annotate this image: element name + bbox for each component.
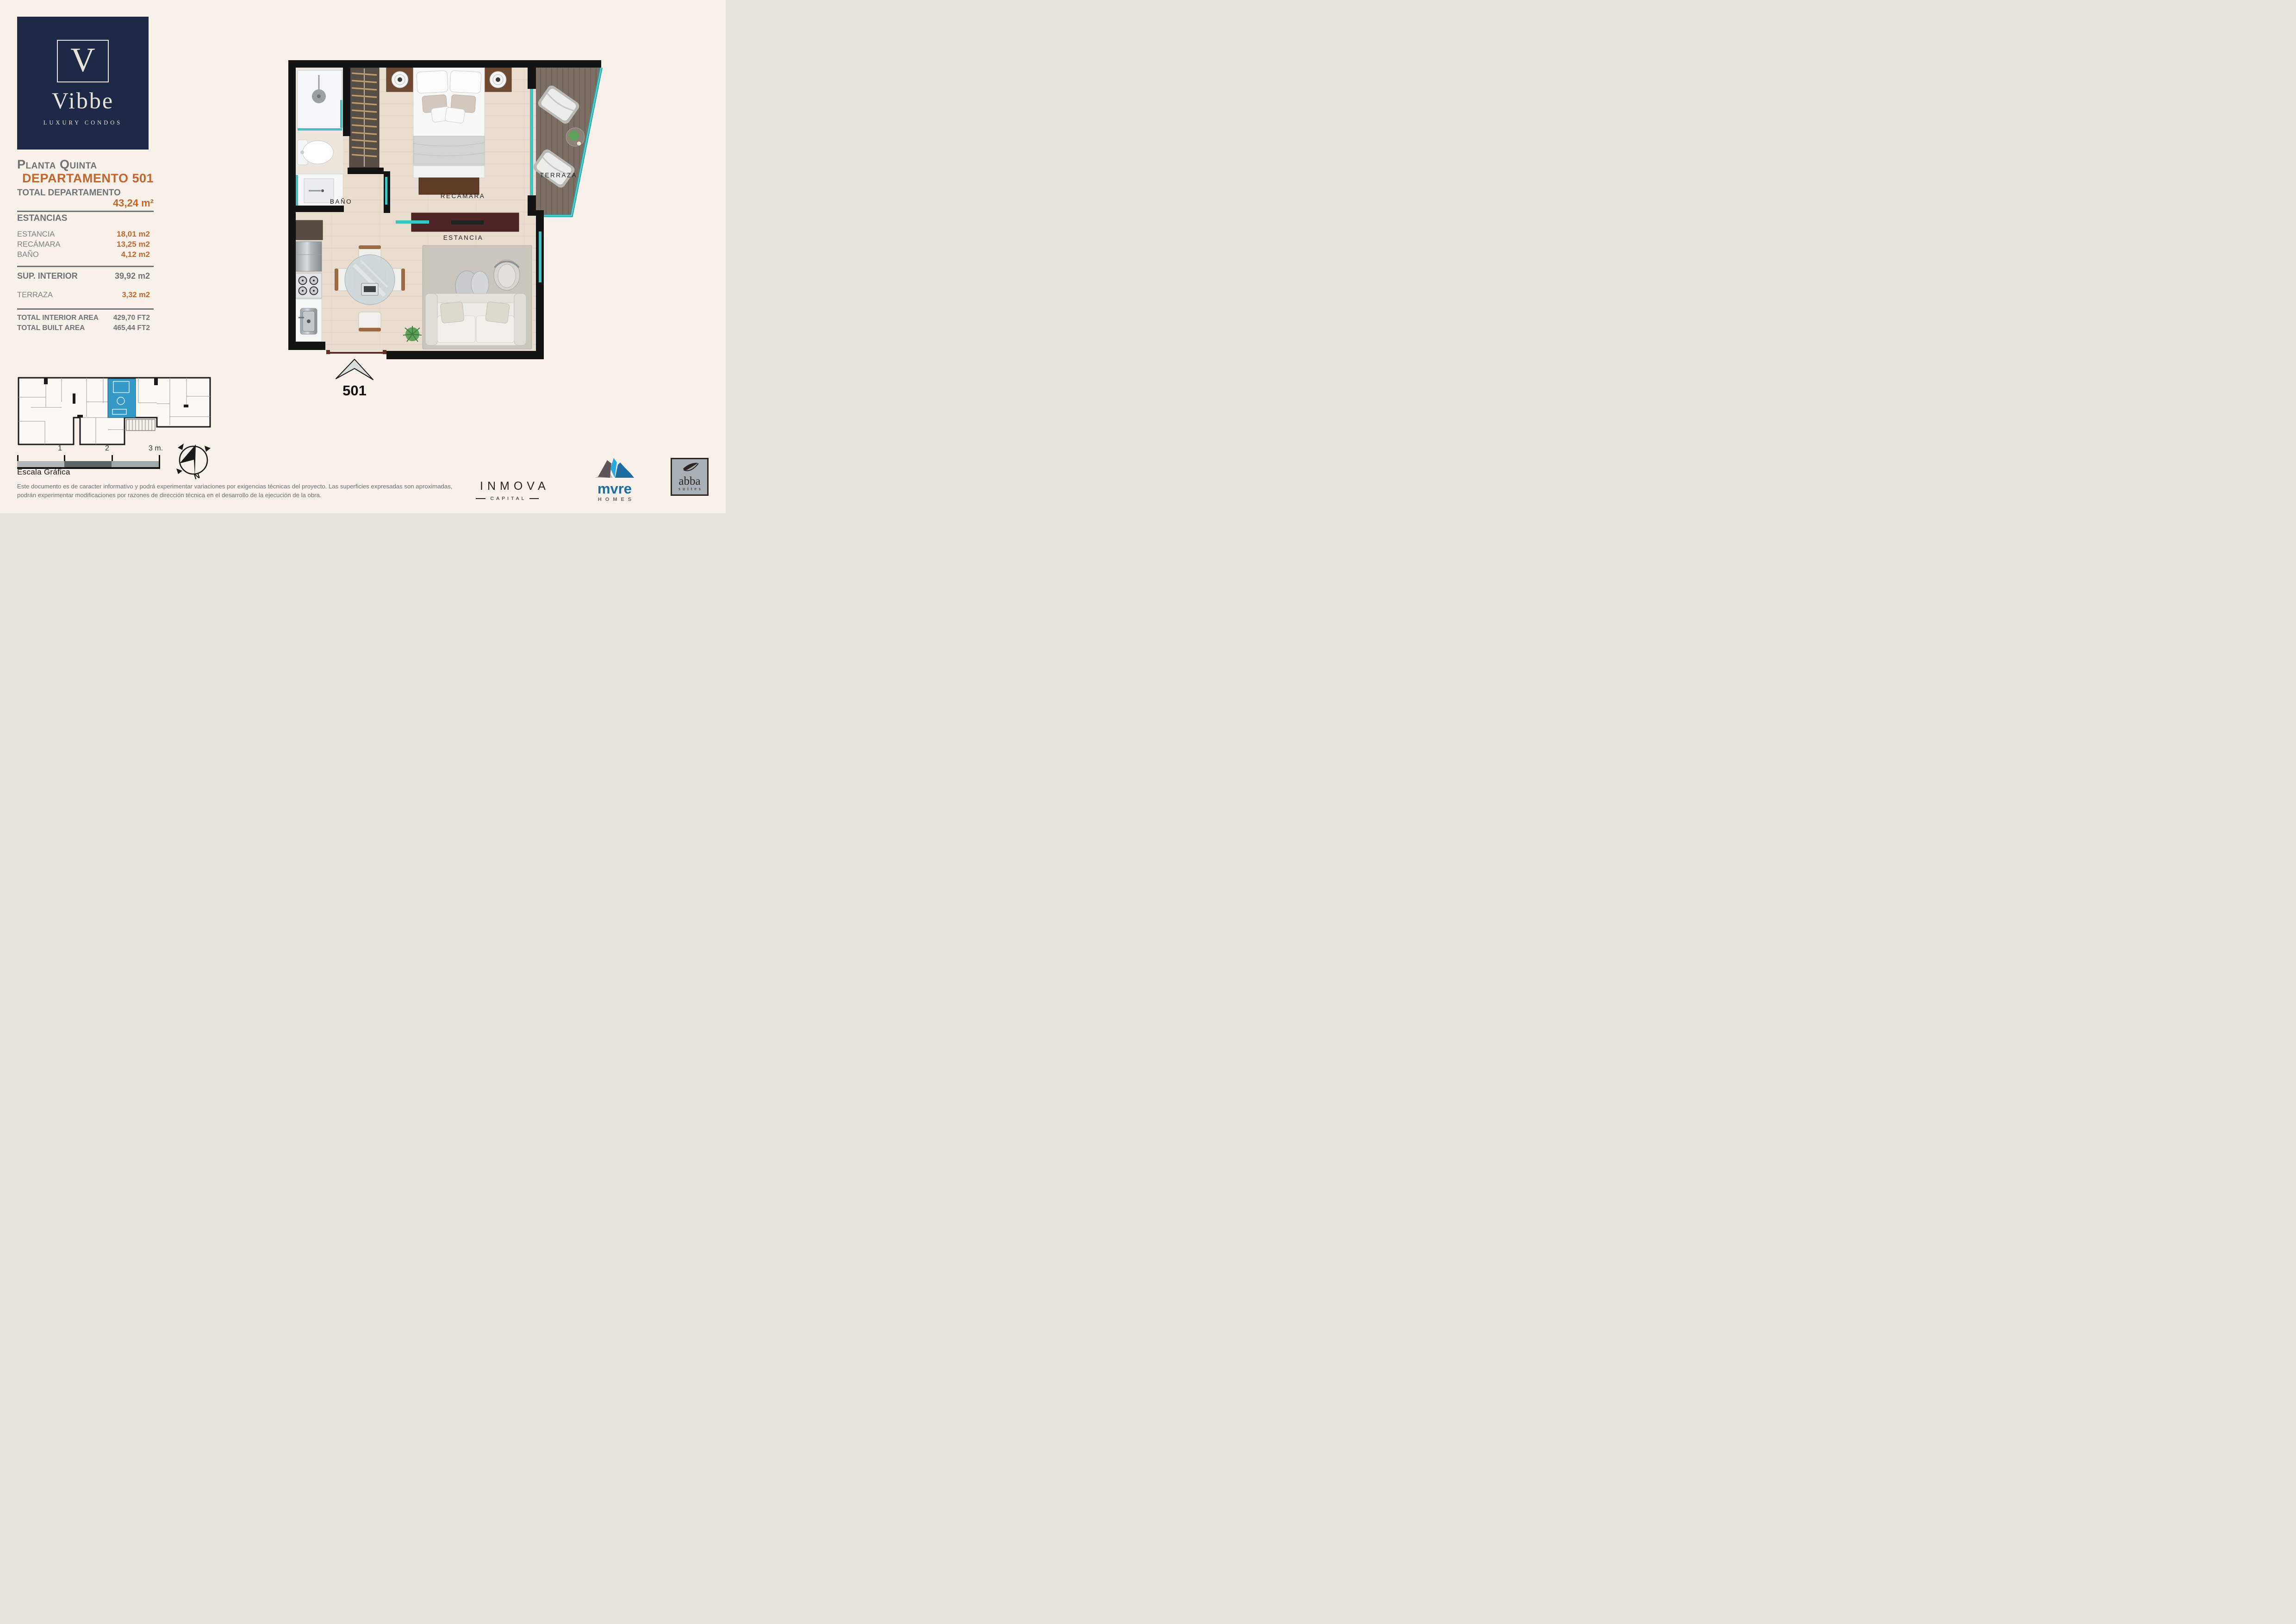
terraza-row: TERRAZA 3,32 m2 bbox=[17, 291, 154, 300]
floorplan: BAÑO RECÁMARA ESTANCIA TERRAZA 501 bbox=[288, 58, 608, 401]
highlighted-unit-501 bbox=[108, 379, 136, 418]
key-plan bbox=[17, 375, 212, 448]
accent-chair bbox=[494, 260, 520, 290]
kitchen-sink bbox=[296, 299, 322, 342]
sup-interior-label: SUP. INTERIOR bbox=[17, 271, 78, 281]
abba-name: abba bbox=[672, 476, 707, 487]
sup-interior-value: 39,92 m2 bbox=[115, 271, 154, 281]
room-label: BAÑO bbox=[17, 250, 39, 259]
kitchen bbox=[296, 220, 323, 342]
terrace-table bbox=[566, 128, 585, 146]
mvre-mountains-icon bbox=[592, 456, 637, 481]
total-departamento-label: TOTAL DEPARTAMENTO bbox=[17, 188, 154, 198]
bed-bench bbox=[419, 178, 479, 194]
scale-segments bbox=[17, 461, 160, 467]
nightstand-right bbox=[485, 68, 511, 92]
total-built-row: TOTAL BUILT AREA 465,44 FT2 bbox=[17, 324, 154, 332]
bedroom-window-glass bbox=[530, 89, 533, 195]
page-canvas: V Vibbe LUXURY CONDOS Planta Quinta DEPA… bbox=[0, 0, 726, 513]
room-row-recamara: RECÁMARA 13,25 m2 bbox=[17, 240, 154, 249]
room-value: 4,12 m2 bbox=[121, 250, 154, 259]
total-departamento-value: 43,24 m² bbox=[17, 197, 157, 209]
nightstand-left bbox=[386, 68, 413, 92]
logo-v-letter: V bbox=[17, 41, 149, 80]
brand-logo: V Vibbe LUXURY CONDOS bbox=[17, 17, 149, 150]
sofa bbox=[425, 294, 526, 345]
unit-title: DEPARTAMENTO 501 bbox=[17, 171, 154, 186]
fridge bbox=[296, 242, 322, 271]
abba-sub: suites bbox=[672, 487, 707, 492]
room-row-estancia: ESTANCIA 18,01 m2 bbox=[17, 230, 154, 239]
total-built-value: 465,44 FT2 bbox=[113, 324, 154, 332]
label-recamara: RECÁMARA bbox=[441, 193, 485, 200]
hall-pocket-door bbox=[385, 177, 387, 205]
divider bbox=[17, 266, 154, 267]
unit-number-marker: 501 bbox=[336, 359, 373, 399]
scale-title: Escala Gráfica bbox=[17, 468, 70, 477]
total-interior-row: TOTAL INTERIOR AREA 429,70 FT2 bbox=[17, 314, 154, 322]
total-built-label: TOTAL BUILT AREA bbox=[17, 324, 85, 332]
inmova-name: INMOVA bbox=[476, 480, 539, 493]
total-interior-label: TOTAL INTERIOR AREA bbox=[17, 314, 99, 322]
tv-console bbox=[396, 213, 519, 231]
disclaimer-line-1: Este documento es de caracter informativ… bbox=[17, 482, 461, 491]
abba-leaf-icon bbox=[679, 461, 700, 473]
stairs bbox=[126, 419, 155, 431]
room-value: 18,01 m2 bbox=[117, 230, 154, 239]
shower-panel-glass bbox=[340, 100, 342, 128]
label-terraza: TERRAZA bbox=[540, 172, 578, 179]
estancias-heading: ESTANCIAS bbox=[17, 213, 154, 224]
wardrobe bbox=[349, 68, 379, 168]
floor-title: Planta Quinta bbox=[17, 157, 154, 172]
compass-icon: N bbox=[172, 438, 215, 482]
terrace bbox=[532, 68, 601, 216]
scale-tick-3: 3 m. bbox=[149, 444, 163, 453]
mvre-name: mvre bbox=[592, 482, 637, 496]
abba-logo: abba suites bbox=[671, 458, 709, 496]
unit-number: 501 bbox=[342, 382, 367, 399]
total-interior-value: 429,70 FT2 bbox=[113, 314, 154, 322]
room-row-bano: BAÑO 4,12 m2 bbox=[17, 250, 154, 259]
room-value: 13,25 m2 bbox=[117, 240, 154, 249]
entry-door bbox=[328, 352, 385, 354]
label-bano: BAÑO bbox=[330, 198, 352, 205]
terraza-label: TERRAZA bbox=[17, 291, 53, 300]
room-label: RECÁMARA bbox=[17, 240, 61, 249]
mvre-logo: mvre HOMES bbox=[592, 456, 637, 502]
inmova-logo: INMOVA CAPITAL bbox=[476, 480, 539, 501]
disclaimer-line-2: podrán experimentar modificaciones por r… bbox=[17, 491, 461, 500]
terraza-value: 3,32 m2 bbox=[122, 291, 154, 300]
room-label: ESTANCIA bbox=[17, 230, 55, 239]
stove bbox=[296, 273, 322, 298]
bathroom bbox=[296, 68, 343, 207]
shower-glass bbox=[298, 128, 342, 131]
divider bbox=[17, 211, 154, 212]
scale-tick-2: 2 bbox=[105, 444, 109, 453]
inmova-sub: CAPITAL bbox=[488, 496, 527, 501]
living-window-glass bbox=[539, 231, 541, 282]
label-estancia: ESTANCIA bbox=[443, 234, 484, 241]
living-area bbox=[403, 245, 532, 349]
mvre-sub: HOMES bbox=[592, 497, 637, 502]
sup-interior-row: SUP. INTERIOR 39,92 m2 bbox=[17, 271, 154, 281]
bed bbox=[413, 68, 485, 194]
toilet bbox=[298, 140, 333, 165]
laptop bbox=[361, 283, 378, 295]
brand-tagline: LUXURY CONDOS bbox=[17, 119, 149, 126]
entrance-arrow-icon bbox=[336, 359, 373, 380]
brand-name: Vibbe bbox=[17, 87, 149, 114]
disclaimer-text: Este documento es de caracter informativ… bbox=[17, 482, 461, 500]
kitchen-cabinet bbox=[296, 220, 323, 240]
divider bbox=[17, 308, 154, 310]
scale-tick-1: 1 bbox=[58, 444, 62, 453]
